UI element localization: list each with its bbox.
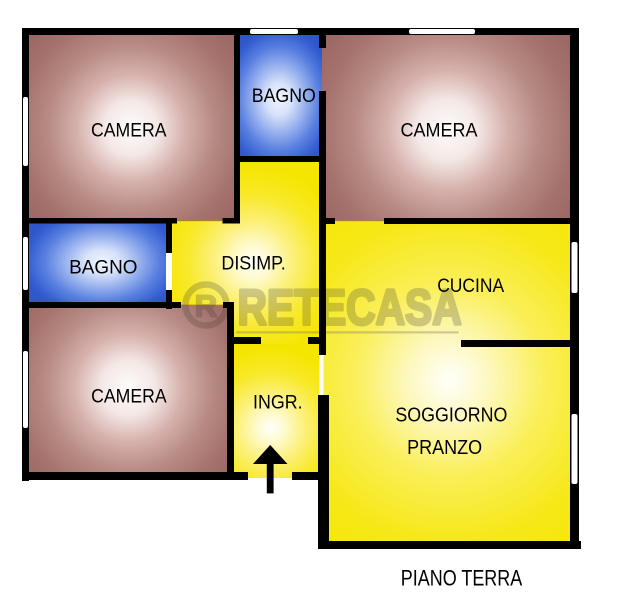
svg-text:PIANO TERRA: PIANO TERRA [401, 565, 523, 590]
svg-text:BAGNO: BAGNO [252, 86, 316, 107]
svg-text:CUCINA: CUCINA [437, 276, 504, 297]
svg-text:DISIMP.: DISIMP. [221, 253, 285, 274]
svg-text:INGR.: INGR. [253, 393, 303, 414]
svg-text:CAMERA: CAMERA [91, 120, 167, 141]
svg-text:CAMERA: CAMERA [91, 386, 167, 407]
svg-text:RETECASA: RETECASA [238, 280, 462, 336]
svg-text:SOGGIORNO: SOGGIORNO [395, 403, 507, 426]
svg-text:CAMERA: CAMERA [401, 120, 478, 141]
svg-text:R: R [195, 289, 217, 324]
svg-text:PRANZO: PRANZO [407, 436, 482, 459]
svg-text:BAGNO: BAGNO [69, 258, 137, 279]
